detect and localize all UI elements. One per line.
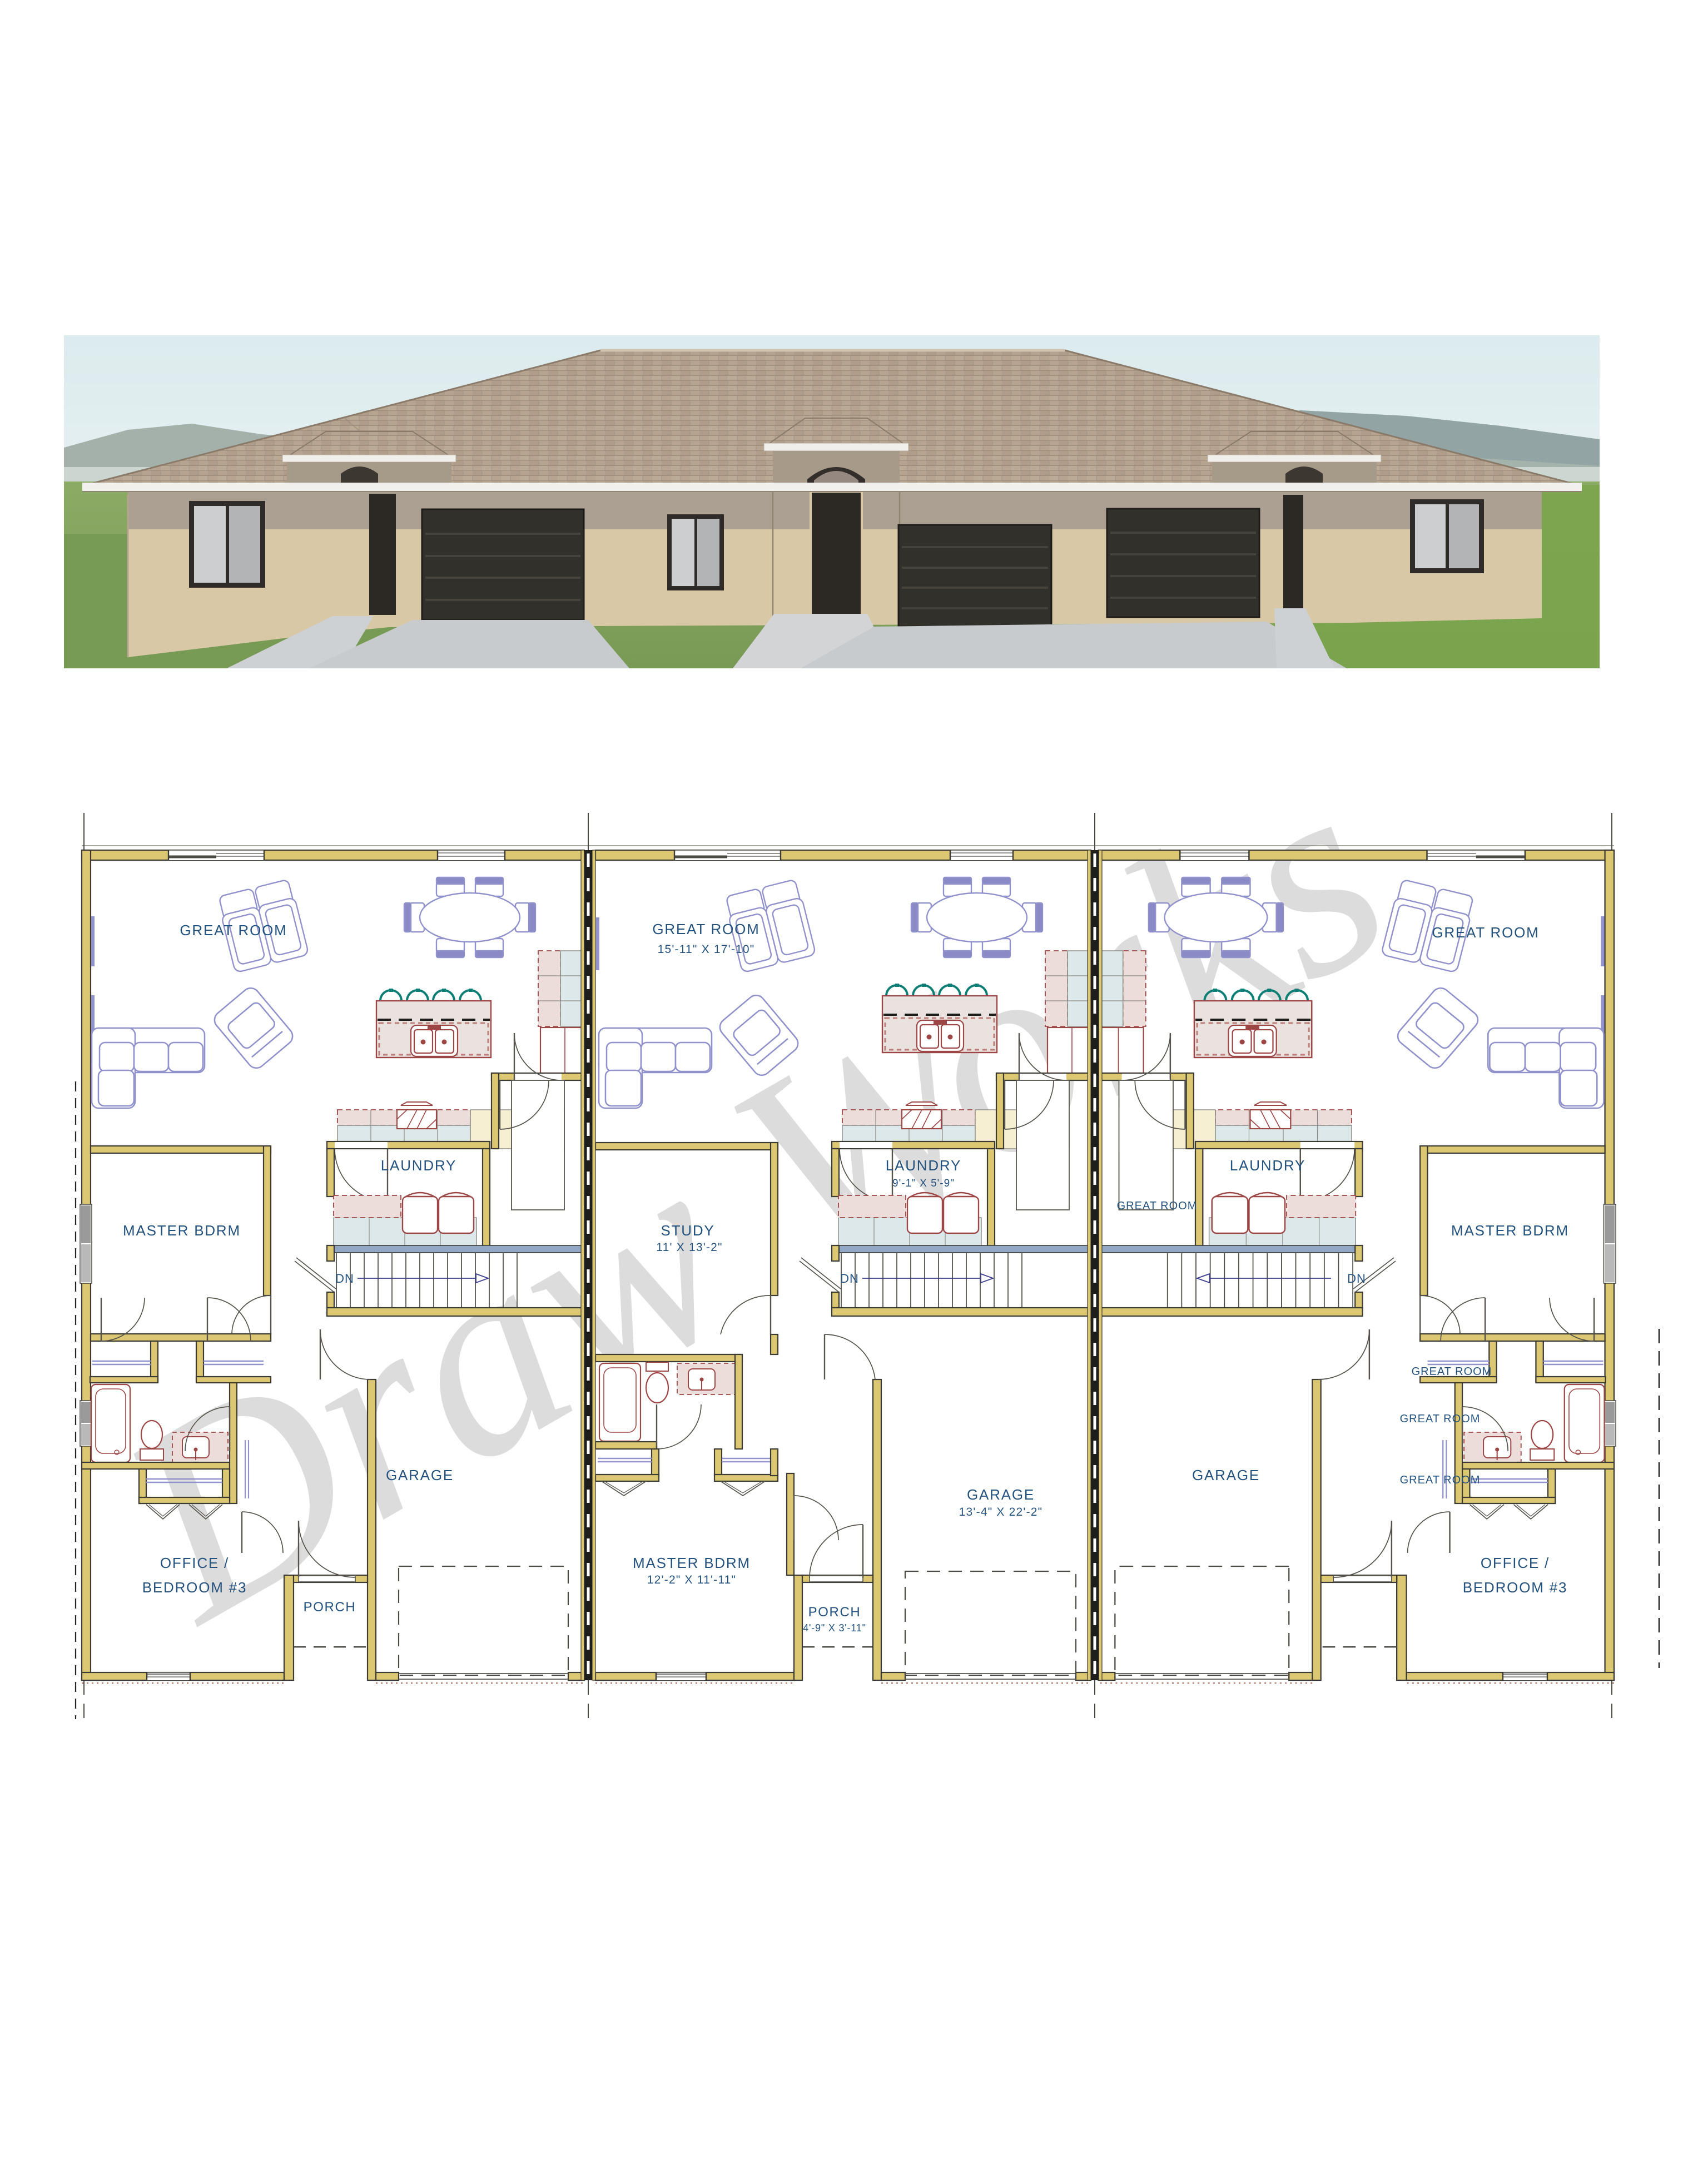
svg-text:GREAT ROOM: GREAT ROOM <box>180 922 287 939</box>
svg-text:GREAT ROOM: GREAT ROOM <box>1117 1200 1198 1212</box>
svg-text:PORCH: PORCH <box>808 1605 861 1620</box>
svg-text:GREAT ROOM: GREAT ROOM <box>1400 1474 1481 1486</box>
svg-text:LAUNDRY: LAUNDRY <box>1230 1157 1305 1174</box>
svg-text:LAUNDRY: LAUNDRY <box>886 1157 961 1174</box>
svg-text:13'-4" X 22'-2": 13'-4" X 22'-2" <box>959 1506 1043 1518</box>
svg-text:GREAT ROOM: GREAT ROOM <box>1412 1366 1492 1378</box>
svg-text:BEDROOM #3: BEDROOM #3 <box>142 1579 247 1596</box>
svg-text:15'-11" X 17'-10": 15'-11" X 17'-10" <box>658 943 755 956</box>
svg-text:GREAT ROOM: GREAT ROOM <box>652 921 759 937</box>
svg-text:GARAGE: GARAGE <box>967 1486 1035 1503</box>
svg-text:GARAGE: GARAGE <box>1192 1467 1260 1483</box>
svg-text:MASTER BDRM: MASTER BDRM <box>633 1555 751 1571</box>
svg-text:MASTER BDRM: MASTER BDRM <box>1451 1222 1569 1239</box>
svg-text:GREAT ROOM: GREAT ROOM <box>1432 924 1539 941</box>
svg-text:OFFICE /: OFFICE / <box>1481 1555 1550 1571</box>
svg-text:LAUNDRY: LAUNDRY <box>381 1157 456 1174</box>
svg-text:4'-9" X 3'-11": 4'-9" X 3'-11" <box>803 1622 866 1634</box>
svg-text:GREAT ROOM: GREAT ROOM <box>1400 1413 1481 1425</box>
svg-text:DN: DN <box>335 1272 354 1285</box>
svg-text:11' X 13'-2": 11' X 13'-2" <box>656 1241 722 1254</box>
svg-text:GARAGE: GARAGE <box>386 1467 454 1483</box>
svg-text:STUDY: STUDY <box>661 1222 714 1239</box>
svg-text:PORCH: PORCH <box>304 1600 356 1615</box>
svg-text:9'-1" X 5'-9": 9'-1" X 5'-9" <box>892 1178 955 1189</box>
svg-text:DN: DN <box>1347 1272 1366 1285</box>
svg-text:12'-2" X 11'-11": 12'-2" X 11'-11" <box>647 1574 736 1586</box>
svg-text:MASTER BDRM: MASTER BDRM <box>123 1222 241 1239</box>
svg-text:BEDROOM #3: BEDROOM #3 <box>1463 1579 1568 1596</box>
svg-text:DN: DN <box>840 1272 859 1285</box>
svg-text:OFFICE /: OFFICE / <box>160 1555 229 1571</box>
